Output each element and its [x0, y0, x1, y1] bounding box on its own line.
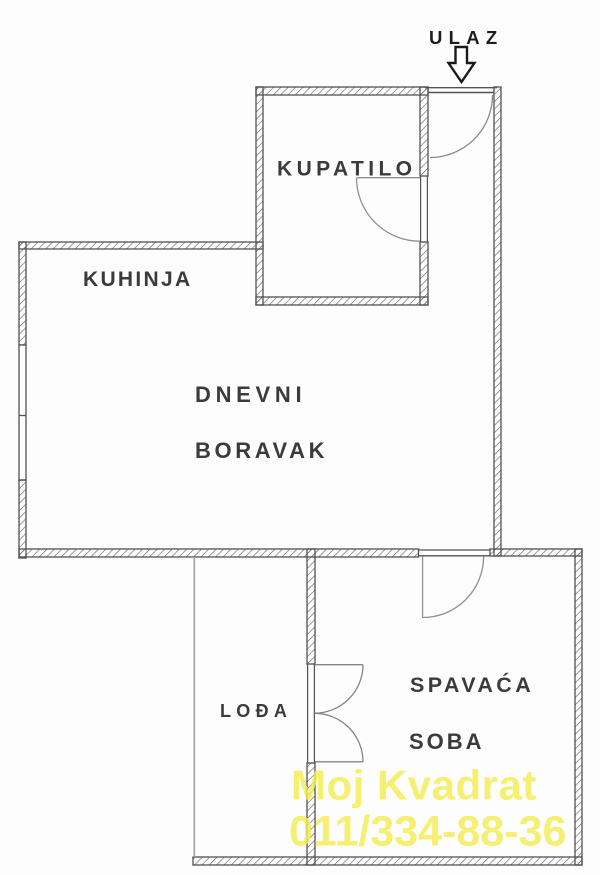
svg-text:SOBA: SOBA — [409, 729, 485, 754]
svg-text:ULAZ: ULAZ — [429, 27, 504, 48]
svg-text:KUHINJA: KUHINJA — [83, 268, 192, 291]
svg-text:011/334-88-36: 011/334-88-36 — [289, 808, 566, 856]
svg-text:Moj Kvadrat: Moj Kvadrat — [291, 762, 537, 809]
svg-text:DNEVNI: DNEVNI — [195, 382, 306, 407]
svg-text:KUPATILO: KUPATILO — [277, 158, 416, 181]
svg-text:BORAVAK: BORAVAK — [195, 438, 328, 463]
svg-text:SPAVAĆA: SPAVAĆA — [410, 672, 534, 697]
svg-text:LOĐA: LOĐA — [220, 701, 292, 721]
